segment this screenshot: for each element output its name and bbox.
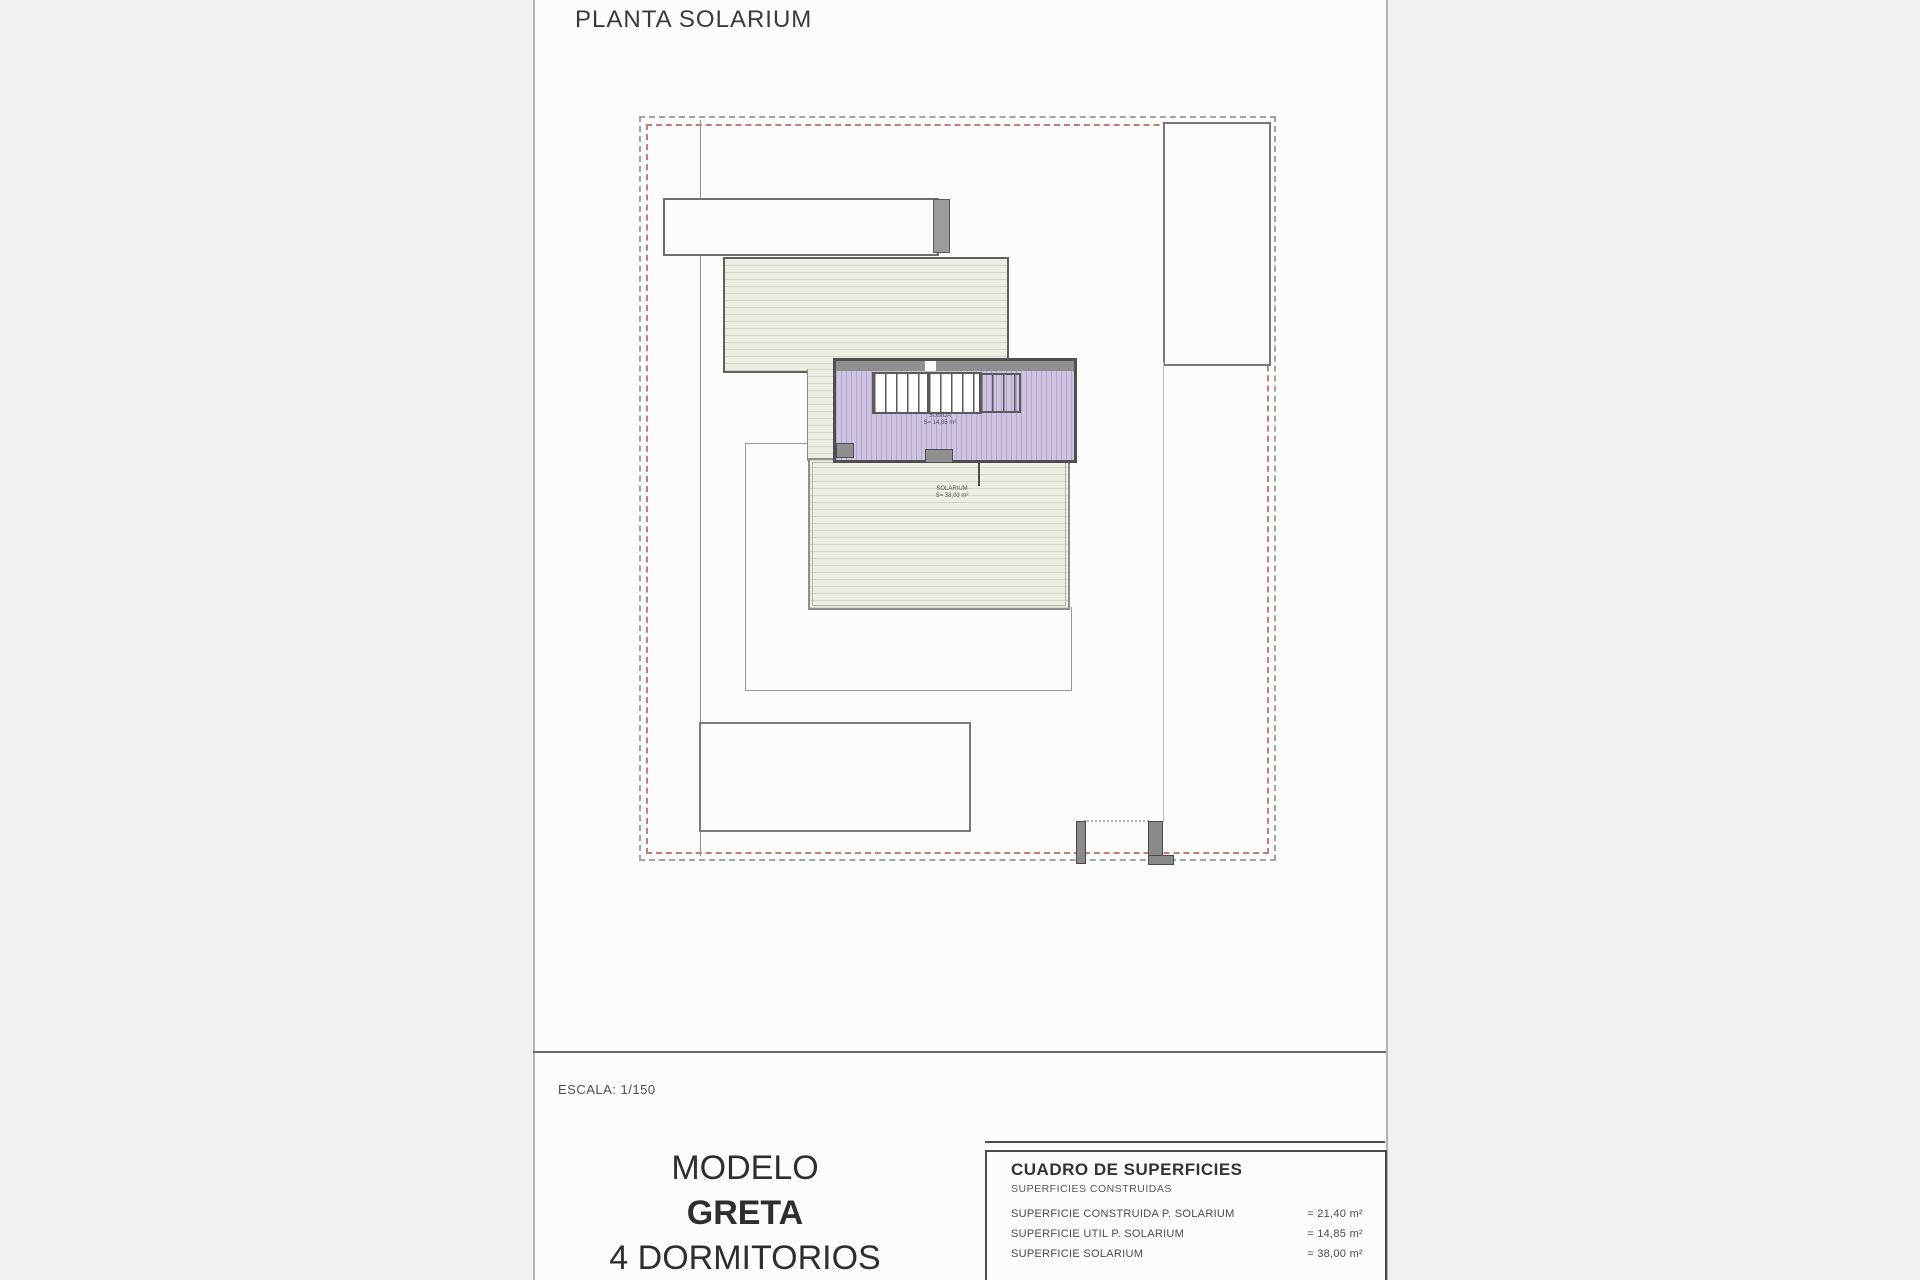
row-value: = 21,40 m²: [1307, 1204, 1363, 1224]
deck-door-jamb: [978, 460, 980, 486]
model-title-block: MODELO GRETA 4 DORMITORIOS: [560, 1146, 930, 1280]
plan-title: PLANTA SOLARIUM: [575, 6, 895, 34]
table-row: SUPERFICIE CONSTRUIDA P. SOLARIUM = 21,4…: [1011, 1204, 1363, 1224]
model-bedrooms: 4 DORMITORIOS: [560, 1236, 930, 1280]
deck-label-name: SOLARIUM: [902, 486, 1002, 493]
stairs: [872, 372, 982, 414]
stair-entry-step: [925, 449, 953, 463]
stair-label: SUBIDA S= 14,85 m²: [890, 413, 990, 427]
surfaces-table: CUADRO DE SUPERFICIES SUPERFICIES CONSTR…: [985, 1150, 1387, 1280]
stair-label-area: S= 14,85 m²: [890, 420, 990, 427]
row-label: SUPERFICIE SOLARIUM: [1011, 1244, 1143, 1264]
stair-bulkhead-top-wall: [836, 361, 1074, 371]
side-structure-outline: [1163, 122, 1271, 366]
stair-corner-wall: [836, 443, 854, 458]
gate-opening-dotted-line: [1084, 820, 1149, 822]
lower-floor-outline-bottom: [745, 690, 1072, 691]
gate-post-left: [1076, 821, 1086, 864]
stairs-upper-flight: [979, 373, 1021, 413]
sheet-divider-line: [533, 1051, 1386, 1053]
gate-post-foot: [1148, 855, 1174, 865]
solarium-deck-label: SOLARIUM S= 38,00 m²: [902, 486, 1002, 500]
row-value: = 38,00 m²: [1307, 1244, 1363, 1264]
pergola-column: [933, 199, 950, 253]
roof-terrace-hatch: [723, 257, 1009, 373]
surfaces-table-rows: SUPERFICIE CONSTRUIDA P. SOLARIUM = 21,4…: [1011, 1204, 1363, 1264]
row-label: SUPERFICIE CONSTRUIDA P. SOLARIUM: [1011, 1204, 1235, 1224]
stair-bulkhead: SUBIDA S= 14,85 m²: [833, 358, 1077, 463]
surfaces-table-title: CUADRO DE SUPERFICIES: [1011, 1160, 1243, 1180]
architectural-drawing: PLANTA SOLARIUM SOLARIUM S= 38,00 m² SUB…: [0, 0, 1920, 1280]
title-block-rule: [985, 1141, 1385, 1143]
lower-structure-outline: [699, 722, 971, 832]
surfaces-table-subtitle: SUPERFICIES CONSTRUIDAS: [1011, 1183, 1172, 1195]
row-value: = 14,85 m²: [1307, 1224, 1363, 1244]
solarium-deck: SOLARIUM S= 38,00 m²: [808, 458, 1070, 610]
lower-floor-outline-top: [745, 443, 807, 444]
stair-bulkhead-wall-notch: [925, 361, 936, 371]
solarium-deck-inner-border: [812, 462, 1066, 606]
table-row: SUPERFICIE SOLARIUM = 38,00 m²: [1011, 1244, 1363, 1264]
side-structure-edge-line: [1163, 362, 1164, 822]
stair-center-rail: [927, 374, 929, 412]
row-label: SUPERFICIE UTIL P. SOLARIUM: [1011, 1224, 1184, 1244]
stair-label-name: SUBIDA: [890, 413, 990, 420]
lower-floor-outline-left: [745, 443, 746, 690]
pergola-beam: [663, 198, 939, 256]
model-name: GRETA: [560, 1191, 930, 1236]
deck-label-area: S= 38,00 m²: [902, 493, 1002, 500]
lower-floor-outline-right: [1071, 607, 1072, 690]
scale-label: ESCALA: 1/150: [558, 1082, 656, 1097]
table-row: SUPERFICIE UTIL P. SOLARIUM = 14,85 m²: [1011, 1224, 1363, 1244]
model-prefix: MODELO: [560, 1146, 930, 1191]
